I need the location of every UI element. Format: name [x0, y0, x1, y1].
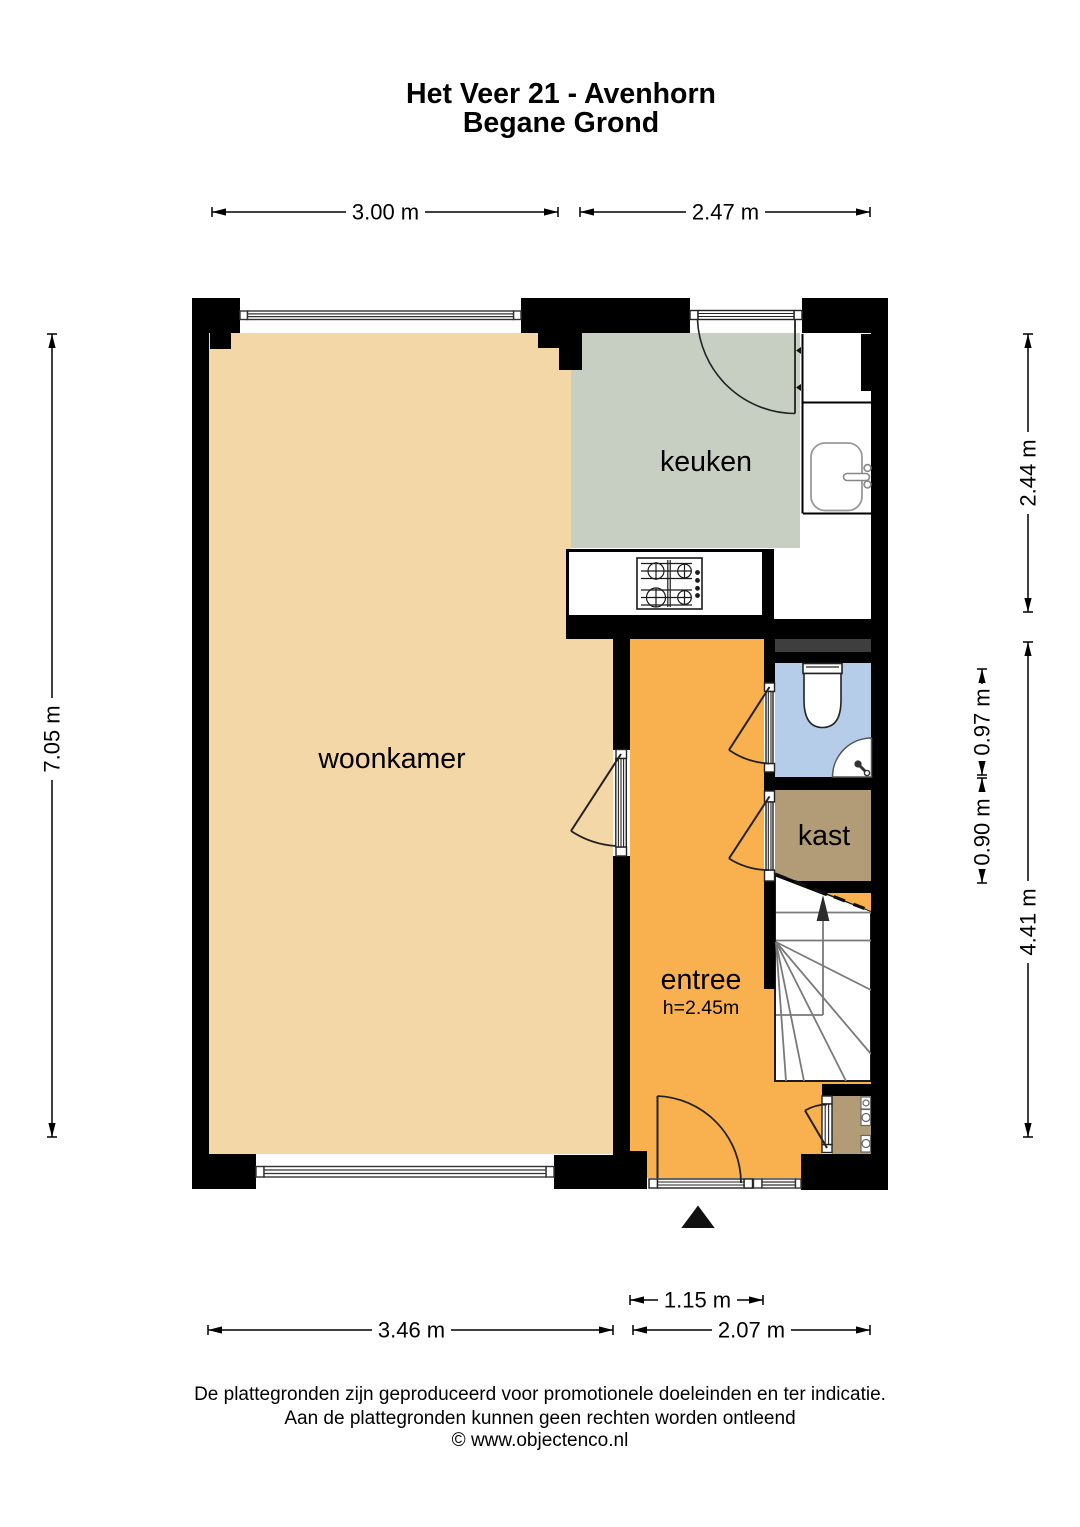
svg-text:0.90 m: 0.90 m [970, 798, 995, 865]
svg-text:© www.objectenco.nl: © www.objectenco.nl [452, 1430, 629, 1451]
svg-text:woonkamer: woonkamer [317, 743, 466, 775]
svg-text:3.00 m: 3.00 m [352, 200, 419, 225]
svg-text:1.15 m: 1.15 m [664, 1288, 731, 1313]
svg-text:Aan de plattegronden kunnen ge: Aan de plattegronden kunnen geen rechten… [284, 1408, 795, 1429]
svg-text:Het Veer 21 - Avenhorn: Het Veer 21 - Avenhorn [406, 78, 716, 110]
svg-text:Begane Grond: Begane Grond [463, 107, 659, 139]
svg-text:kast: kast [798, 820, 850, 852]
svg-text:3.46 m: 3.46 m [378, 1318, 445, 1343]
svg-text:2.07 m: 2.07 m [718, 1318, 785, 1343]
svg-text:0.97 m: 0.97 m [970, 688, 995, 755]
svg-text:2.44 m: 2.44 m [1016, 439, 1041, 506]
svg-text:De plattegronden zijn geproduc: De plattegronden zijn geproduceerd voor … [194, 1384, 886, 1405]
svg-text:7.05 m: 7.05 m [40, 705, 65, 772]
svg-text:keuken: keuken [660, 446, 752, 478]
svg-text:h=2.45m: h=2.45m [663, 997, 739, 1019]
svg-text:2.47 m: 2.47 m [692, 200, 759, 225]
svg-text:entree: entree [661, 964, 742, 996]
svg-text:4.41 m: 4.41 m [1016, 888, 1041, 955]
